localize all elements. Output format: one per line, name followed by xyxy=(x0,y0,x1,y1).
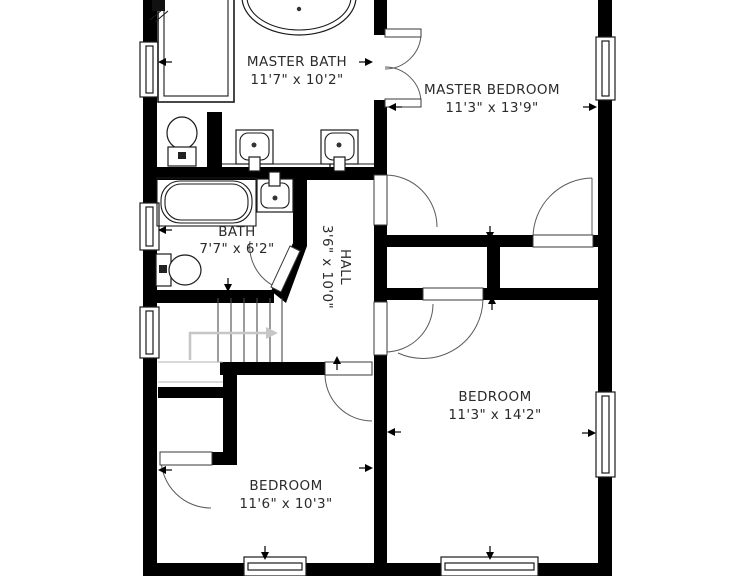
room-name: HALL xyxy=(337,249,353,285)
marker-left xyxy=(158,466,172,474)
room-dims: 11'3" x 13'9" xyxy=(445,100,538,116)
room-dims: 7'7" x 6'2" xyxy=(199,241,274,257)
room-dims: 11'7" x 10'2" xyxy=(250,72,343,88)
room-name: BEDROOM xyxy=(249,478,322,494)
label-hall: HALL 3'6" x 10'0" xyxy=(319,225,353,309)
window-right-master-bedroom xyxy=(596,37,615,100)
marker-down xyxy=(224,278,232,292)
vanity-sink-1 xyxy=(236,130,273,171)
floor-plan: MASTER BATH 11'7" x 10'2" MASTER BEDROOM… xyxy=(0,0,746,576)
label-bath: BATH 7'7" x 6'2" xyxy=(199,224,274,257)
vanity-sink-2 xyxy=(321,130,358,171)
label-master-bedroom: MASTER BEDROOM 11'3" x 13'9" xyxy=(424,82,560,116)
window-bottom-left-bedroom xyxy=(244,557,306,576)
label-master-bath: MASTER BATH 11'7" x 10'2" xyxy=(247,54,347,88)
freestanding-tub xyxy=(242,0,356,35)
bathtub xyxy=(157,178,256,226)
floor-plan-page: MASTER BATH 11'7" x 10'2" MASTER BEDROOM… xyxy=(0,0,746,576)
door-bedroom-left xyxy=(325,362,372,421)
window-left-2 xyxy=(140,203,159,250)
room-name: MASTER BEDROOM xyxy=(424,82,560,98)
room-name: BATH xyxy=(218,224,255,240)
door-master-bedroom xyxy=(374,175,437,227)
marker-left xyxy=(158,226,172,234)
marker-left xyxy=(387,428,401,436)
marker-right xyxy=(359,58,373,66)
toilet-bath xyxy=(156,254,201,286)
window-left-3 xyxy=(140,307,159,358)
stair-direction-arrow xyxy=(190,327,278,360)
window-left-1 xyxy=(140,42,159,97)
marker-right xyxy=(583,103,597,111)
door-bedroom-right xyxy=(374,302,433,355)
toilet-master-bath xyxy=(167,117,197,166)
room-name: BEDROOM xyxy=(458,389,531,405)
room-name: MASTER BATH xyxy=(247,54,347,70)
closet-door-bedroom-left xyxy=(160,452,212,508)
window-bottom-right-bedroom xyxy=(441,557,538,576)
room-dims: 11'6" x 10'3" xyxy=(239,496,332,512)
shower xyxy=(150,0,234,102)
closet-door-master-bedroom xyxy=(533,178,593,247)
marker-right xyxy=(582,429,596,437)
label-bedroom-right: BEDROOM 11'3" x 14'2" xyxy=(448,389,541,423)
window-right-bedroom xyxy=(596,392,615,477)
room-dims: 11'3" x 14'2" xyxy=(448,407,541,423)
marker-right xyxy=(359,464,373,472)
french-doors-master-bath xyxy=(385,29,421,107)
room-dims: 3'6" x 10'0" xyxy=(319,225,335,309)
label-bedroom-left: BEDROOM 11'6" x 10'3" xyxy=(239,478,332,512)
